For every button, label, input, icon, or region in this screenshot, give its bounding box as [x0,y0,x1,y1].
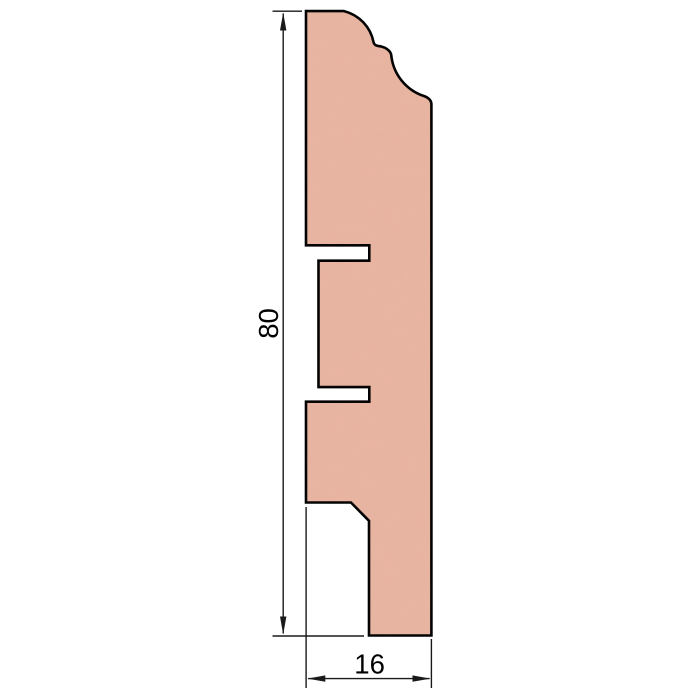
svg-text:16: 16 [354,649,385,680]
svg-text:80: 80 [253,308,284,339]
